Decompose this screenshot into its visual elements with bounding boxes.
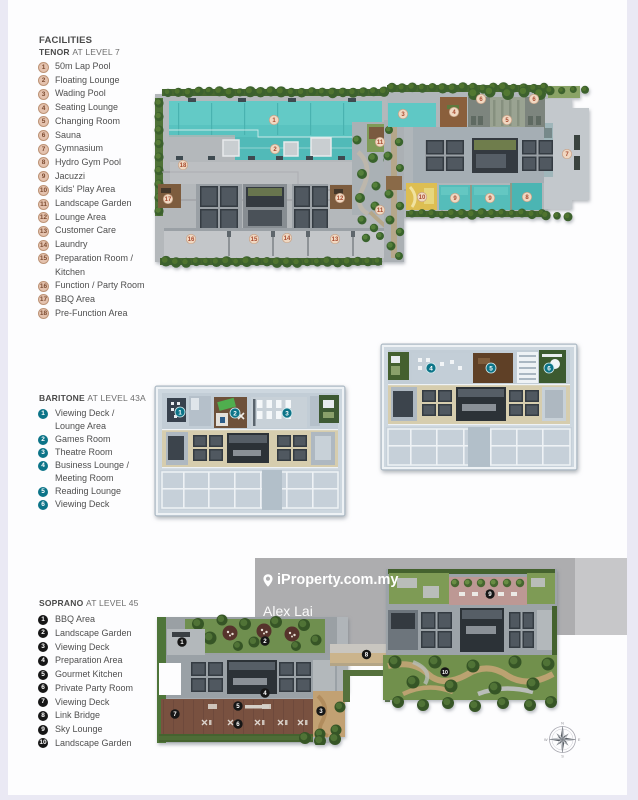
- svg-text:11: 11: [377, 140, 384, 146]
- svg-text:2: 2: [263, 638, 267, 645]
- svg-text:11: 11: [377, 208, 384, 214]
- svg-text:4: 4: [429, 365, 433, 372]
- svg-text:5: 5: [236, 703, 240, 710]
- svg-text:1: 1: [180, 639, 184, 646]
- svg-text:W: W: [544, 738, 548, 742]
- svg-text:4: 4: [263, 690, 267, 697]
- svg-text:E: E: [578, 738, 581, 742]
- svg-text:5: 5: [489, 365, 493, 372]
- svg-text:7: 7: [173, 711, 177, 718]
- svg-text:6: 6: [236, 721, 240, 728]
- svg-text:13: 13: [332, 237, 339, 243]
- svg-text:17: 17: [165, 197, 172, 203]
- svg-text:S: S: [561, 755, 564, 758]
- svg-text:14: 14: [284, 236, 291, 242]
- svg-text:8: 8: [365, 652, 369, 659]
- svg-text:18: 18: [180, 163, 187, 169]
- svg-text:1: 1: [178, 409, 182, 416]
- svg-text:12: 12: [337, 196, 344, 202]
- svg-text:10: 10: [442, 670, 448, 676]
- svg-text:16: 16: [188, 237, 195, 243]
- svg-text:6: 6: [547, 365, 551, 372]
- svg-text:2: 2: [233, 410, 237, 417]
- svg-text:3: 3: [285, 410, 289, 417]
- svg-text:10: 10: [419, 195, 426, 201]
- svg-text:15: 15: [251, 237, 258, 243]
- svg-text:3: 3: [319, 708, 323, 715]
- svg-text:N: N: [561, 722, 564, 726]
- svg-text:9: 9: [488, 591, 492, 598]
